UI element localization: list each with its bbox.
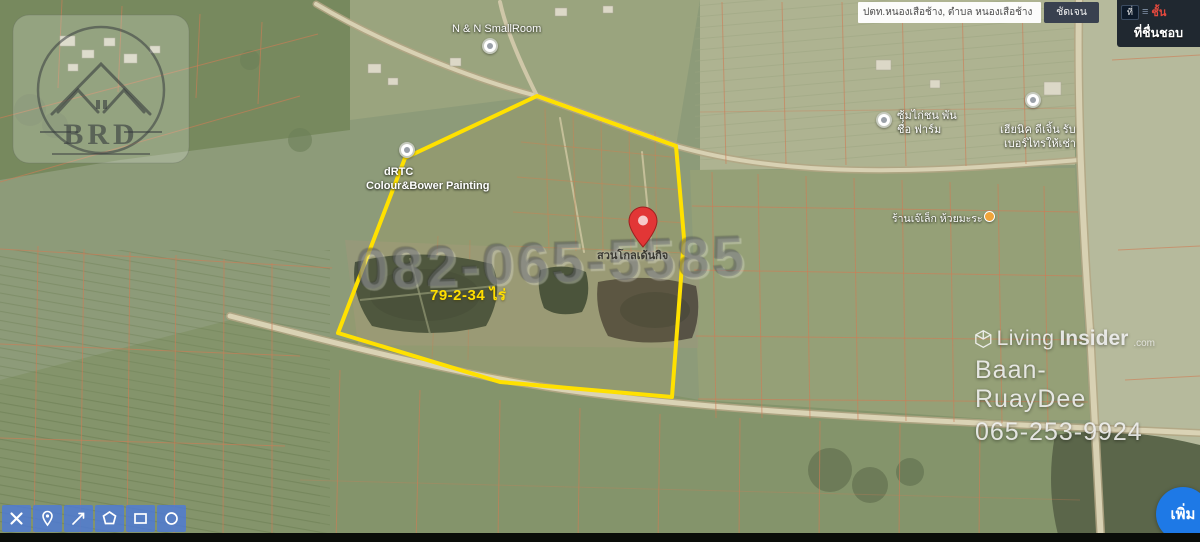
chicken-farm-label-line2[interactable]: ชื่อ ฟาร์ม	[897, 120, 941, 138]
brand-phone: 065-253-9924	[975, 418, 1155, 447]
favorites-button[interactable]: ที่ชื่นชอบ	[1121, 23, 1196, 43]
smallroom-label[interactable]: N & N SmallRoom	[452, 23, 541, 35]
layers-menu-icon: ≡	[1142, 7, 1148, 18]
brand-name-bold: Insider	[1059, 327, 1128, 351]
search-input[interactable]	[858, 2, 1041, 23]
smallroom-poi-icon[interactable]	[482, 38, 498, 54]
brd-watermark: BRD	[12, 14, 190, 164]
polygon-tool-icon	[101, 510, 118, 527]
clear-search-button[interactable]: ชัดเจน	[1044, 2, 1099, 23]
phone-watermark: 082-065-5585	[355, 223, 748, 303]
toolbar-button-measure[interactable]	[64, 505, 93, 532]
map-app-window: BRD 082-065-5585 N & N SmallRoom dRTC Co…	[0, 0, 1200, 542]
draw-toolbar	[2, 505, 186, 532]
right-shop-label-line2[interactable]: เบอร์ไทรให้เช่า	[1004, 134, 1076, 152]
layers-toggle[interactable]: ชั้น	[1151, 3, 1166, 21]
pin-tool-icon	[39, 510, 56, 527]
brand-name-light: Living	[997, 327, 1055, 351]
brand-tld: .com	[1133, 338, 1155, 349]
parcel-area-label: 79-2-34 ไร่	[430, 283, 506, 307]
circle-tool-icon	[163, 510, 180, 527]
pin-place-label[interactable]: สวนโกลเด้นกิจ	[597, 246, 668, 264]
bottom-strip	[0, 533, 1200, 542]
brand-agent-name: Baan-RuayDee	[975, 356, 1155, 414]
brd-watermark-text: BRD	[63, 118, 138, 151]
toolbar-button-rectangle[interactable]	[126, 505, 155, 532]
right-shop-poi-icon[interactable]	[1025, 92, 1041, 108]
rtc-label-line2[interactable]: Colour&Bower Painting	[366, 180, 489, 192]
toolbar-button-circle[interactable]	[157, 505, 186, 532]
melon-shop-poi-icon[interactable]	[984, 211, 995, 222]
toolbar-button-pin[interactable]	[33, 505, 62, 532]
cube-logo-icon	[975, 328, 992, 350]
melon-shop-label[interactable]: ร้านเจ๊เล็ก ห้วยมะระ	[892, 210, 983, 227]
rectangle-tool-icon	[132, 510, 149, 527]
layers-panel: ที่ ≡ ชั้น ที่ชื่นชอบ	[1117, 0, 1200, 47]
brand-watermark: LivingInsider.com Baan-RuayDee 065-253-9…	[975, 327, 1155, 447]
toolbar-button-edit[interactable]	[2, 505, 31, 532]
measure-arrow-icon	[70, 510, 87, 527]
rtc-poi-icon[interactable]	[399, 142, 415, 158]
edit-cross-tools-icon	[8, 510, 25, 527]
rtc-label-line1[interactable]: dRTC	[384, 166, 413, 178]
map-pin-icon[interactable]	[628, 206, 658, 248]
layer-chip[interactable]: ที่	[1121, 5, 1139, 20]
toolbar-button-polygon[interactable]	[95, 505, 124, 532]
chicken-farm-poi-icon[interactable]	[876, 112, 892, 128]
